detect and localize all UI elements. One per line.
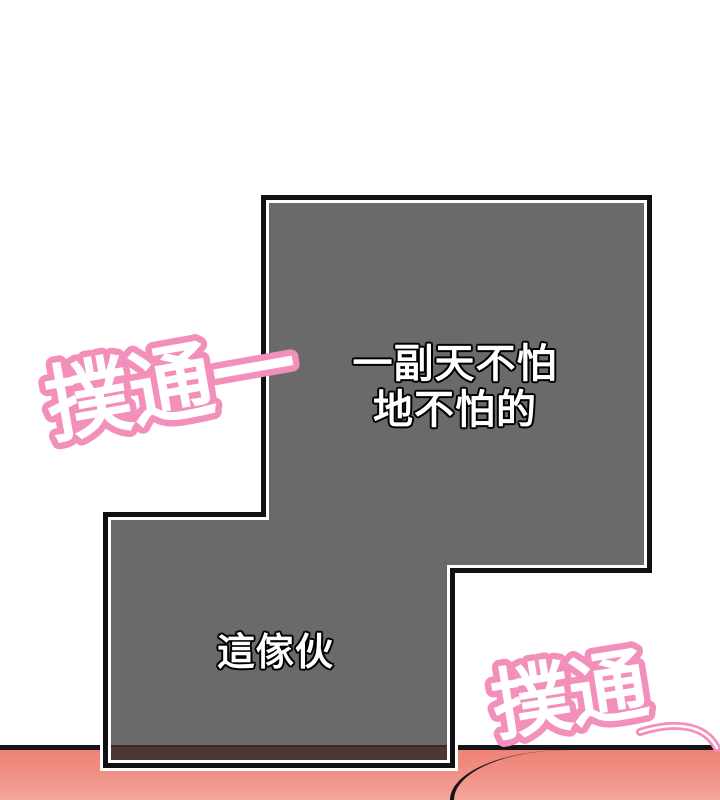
sfx-bottom-right: 撲通 xyxy=(486,639,654,750)
sfx-top-left: 撲通一 xyxy=(39,317,304,453)
sfx-layer: 撲通一 撲通 xyxy=(0,0,720,800)
comic-page: 一副天不怕 地不怕的 這傢伙 撲通一 撲通 xyxy=(0,0,720,800)
